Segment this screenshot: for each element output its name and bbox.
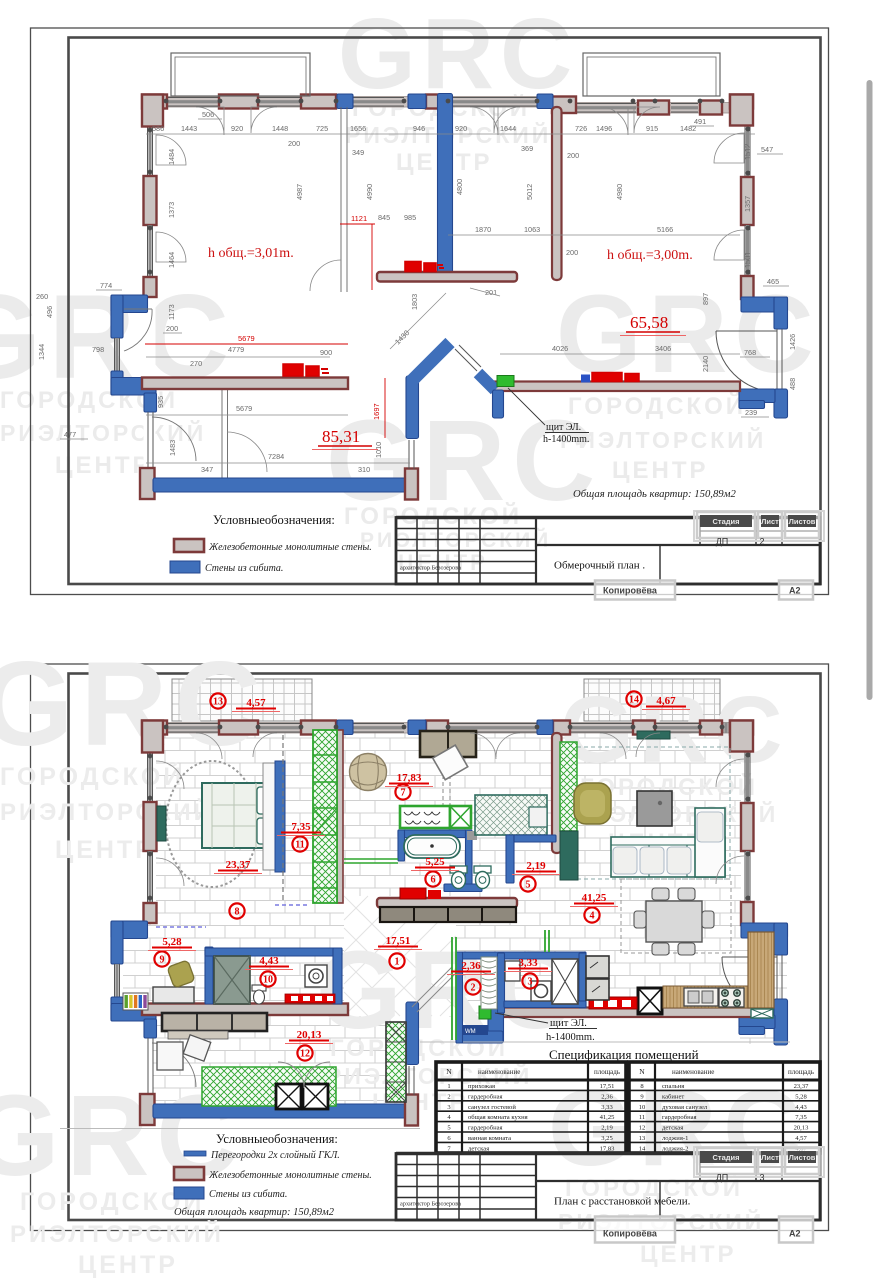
- svg-text:17,83: 17,83: [600, 1145, 616, 1152]
- svg-text:798: 798: [92, 345, 104, 354]
- svg-text:1: 1: [395, 956, 400, 967]
- svg-text:h-1400mm.: h-1400mm.: [546, 1032, 595, 1043]
- svg-text:2: 2: [471, 982, 476, 993]
- svg-text:4800: 4800: [455, 179, 464, 195]
- svg-text:915: 915: [646, 124, 658, 133]
- svg-text:17,51: 17,51: [386, 935, 411, 947]
- svg-text:985: 985: [404, 213, 416, 222]
- svg-text:6: 6: [431, 874, 436, 885]
- svg-text:Перегородки 2х слойный ГКЛ.: Перегородки 2х слойный ГКЛ.: [210, 1150, 340, 1161]
- svg-text:1803: 1803: [410, 294, 419, 310]
- svg-text:1063: 1063: [524, 225, 540, 234]
- svg-text:20,13: 20,13: [297, 1029, 322, 1041]
- svg-text:Железобетонные монолитные стен: Железобетонные монолитные стены.: [208, 1170, 372, 1181]
- svg-text:506: 506: [202, 110, 214, 119]
- svg-text:1644: 1644: [500, 124, 516, 133]
- svg-text:12: 12: [639, 1125, 646, 1132]
- svg-text:ЦЕНТР: ЦЕНТР: [640, 1241, 737, 1268]
- svg-text:1: 1: [447, 1083, 450, 1090]
- svg-text:11: 11: [639, 1114, 645, 1121]
- svg-text:41,25: 41,25: [582, 892, 607, 904]
- svg-text:ванная комната: ванная комната: [468, 1135, 511, 1142]
- svg-text:310: 310: [358, 465, 370, 474]
- svg-text:общая комната кухня: общая комната кухня: [468, 1114, 528, 1121]
- svg-text:239: 239: [745, 408, 757, 417]
- svg-text:200: 200: [567, 151, 579, 160]
- svg-text:23,37: 23,37: [226, 859, 251, 871]
- svg-text:23,37: 23,37: [794, 1083, 810, 1090]
- svg-text:2: 2: [759, 537, 764, 547]
- svg-text:1483: 1483: [168, 440, 177, 456]
- svg-text:774: 774: [100, 281, 112, 290]
- svg-text:Условныеобозначения:: Условныеобозначения:: [213, 513, 335, 527]
- svg-text:1373: 1373: [167, 202, 176, 218]
- svg-text:1357: 1357: [743, 196, 752, 212]
- svg-text:768: 768: [744, 348, 756, 357]
- svg-text:586: 586: [152, 124, 164, 133]
- svg-text:Общая площадь квартир: 150,89м: Общая площадь квартир: 150,89м2: [174, 1207, 335, 1218]
- svg-text:10: 10: [263, 974, 273, 985]
- svg-text:h общ.=3,01m.: h общ.=3,01m.: [208, 246, 294, 261]
- svg-text:Спецификация помещений: Спецификация помещений: [549, 1047, 699, 1062]
- svg-text:1501: 1501: [743, 252, 752, 268]
- svg-text:369: 369: [521, 144, 533, 153]
- svg-text:5: 5: [526, 879, 531, 890]
- svg-text:4,57: 4,57: [246, 697, 266, 709]
- svg-text:845: 845: [378, 213, 390, 222]
- svg-text:897: 897: [701, 293, 710, 305]
- svg-text:площадь: площадь: [594, 1068, 620, 1076]
- svg-text:N: N: [639, 1067, 645, 1076]
- svg-text:кабинет: кабинет: [662, 1093, 684, 1100]
- svg-text:Железобетонные монолитные стен: Железобетонные монолитные стены.: [208, 542, 372, 553]
- svg-text:3: 3: [528, 976, 533, 987]
- svg-text:270: 270: [190, 359, 202, 368]
- svg-text:Копировёва: Копировёва: [603, 1229, 658, 1239]
- svg-text:41,25: 41,25: [600, 1114, 616, 1121]
- svg-text:духовая санузел: духовая санузел: [662, 1104, 708, 1111]
- svg-text:900: 900: [320, 348, 332, 357]
- svg-text:4779: 4779: [228, 345, 244, 354]
- svg-text:17,51: 17,51: [600, 1083, 615, 1090]
- svg-text:1656: 1656: [350, 124, 366, 133]
- svg-text:200: 200: [566, 248, 578, 257]
- svg-text:1121: 1121: [351, 214, 367, 223]
- svg-text:12: 12: [300, 1048, 310, 1059]
- svg-text:гардеробная: гардеробная: [662, 1114, 697, 1121]
- svg-text:7,35: 7,35: [291, 821, 311, 833]
- svg-text:1496: 1496: [596, 124, 612, 133]
- svg-text:1448: 1448: [272, 124, 288, 133]
- svg-text:65,58: 65,58: [630, 313, 668, 332]
- svg-text:4,57: 4,57: [795, 1135, 807, 1142]
- svg-text:2,36: 2,36: [601, 1093, 613, 1100]
- svg-text:17,83: 17,83: [397, 772, 422, 784]
- svg-text:260: 260: [36, 292, 48, 301]
- svg-text:1010: 1010: [374, 442, 383, 458]
- svg-text:1512: 1512: [743, 144, 752, 160]
- svg-text:5,28: 5,28: [162, 936, 182, 948]
- svg-text:2,19: 2,19: [601, 1125, 613, 1132]
- svg-text:5166: 5166: [657, 225, 673, 234]
- svg-text:Стадия: Стадия: [712, 1153, 739, 1162]
- svg-text:Копировёва: Копировёва: [603, 586, 658, 596]
- svg-text:GRC: GRC: [0, 637, 268, 771]
- svg-text:N: N: [446, 1067, 452, 1076]
- svg-text:1173: 1173: [167, 304, 176, 320]
- svg-text:725: 725: [316, 124, 328, 133]
- svg-text:План с расстановкой мебели.: План с расстановкой мебели.: [554, 1196, 691, 1208]
- svg-text:1697: 1697: [372, 403, 381, 420]
- svg-text:5012: 5012: [525, 184, 534, 200]
- svg-text:8: 8: [235, 906, 240, 917]
- svg-text:WM: WM: [465, 1029, 476, 1035]
- svg-text:726: 726: [575, 124, 587, 133]
- svg-text:Стены из сибита.: Стены из сибита.: [205, 563, 283, 574]
- svg-text:Листов: Листов: [789, 517, 816, 526]
- svg-text:5679: 5679: [236, 404, 252, 413]
- svg-text:4,43: 4,43: [795, 1104, 807, 1111]
- svg-text:946: 946: [413, 124, 425, 133]
- svg-text:лоджия-2: лоджия-2: [662, 1145, 688, 1152]
- svg-text:гардеробная: гардеробная: [468, 1093, 503, 1100]
- svg-text:Общая площадь квартир: 150,89м: Общая площадь квартир: 150,89м2: [573, 488, 736, 500]
- svg-text:2: 2: [447, 1093, 450, 1100]
- svg-text:5679: 5679: [238, 334, 255, 343]
- svg-text:3406: 3406: [655, 344, 671, 353]
- svg-text:488: 488: [788, 378, 797, 390]
- svg-text:архитектор Безозерова: архитектор Безозерова: [400, 1201, 461, 1208]
- svg-text:А2: А2: [789, 586, 801, 596]
- svg-text:3,33: 3,33: [601, 1104, 613, 1111]
- svg-text:2140: 2140: [701, 356, 710, 372]
- svg-text:14: 14: [639, 1145, 646, 1152]
- svg-text:7,35: 7,35: [795, 1114, 807, 1121]
- svg-text:2,19: 2,19: [526, 860, 546, 872]
- svg-text:14: 14: [629, 694, 639, 705]
- svg-text:лоджия-1: лоджия-1: [662, 1135, 688, 1142]
- svg-text:200: 200: [288, 139, 300, 148]
- svg-text:3,33: 3,33: [518, 957, 538, 969]
- svg-text:наименование: наименование: [672, 1068, 714, 1076]
- svg-text:4: 4: [590, 910, 595, 921]
- svg-text:4026: 4026: [552, 344, 568, 353]
- svg-text:прихожая: прихожая: [468, 1083, 495, 1090]
- svg-text:Лист: Лист: [761, 1153, 779, 1162]
- svg-text:гардеробная: гардеробная: [468, 1125, 503, 1132]
- svg-text:щит ЭЛ.: щит ЭЛ.: [546, 422, 581, 433]
- svg-text:Обмерочный план .: Обмерочный план .: [554, 560, 645, 572]
- svg-text:Стадия: Стадия: [712, 517, 739, 526]
- svg-text:9: 9: [160, 954, 165, 965]
- svg-text:Лист: Лист: [761, 517, 779, 526]
- svg-text:h общ.=3,00m.: h общ.=3,00m.: [607, 248, 693, 263]
- svg-text:детская: детская: [662, 1125, 683, 1132]
- svg-text:ГОРОДСКОЙ: ГОРОДСКОЙ: [0, 761, 184, 791]
- svg-text:7: 7: [401, 787, 406, 798]
- svg-text:спальня: спальня: [662, 1083, 684, 1090]
- svg-text:РИЭЛТОРСКИЙ: РИЭЛТОРСКИЙ: [10, 1220, 224, 1248]
- svg-text:детская: детская: [468, 1145, 489, 1152]
- svg-text:1464: 1464: [167, 252, 176, 268]
- svg-text:1426: 1426: [788, 334, 797, 350]
- svg-text:477: 477: [64, 430, 76, 439]
- svg-text:ДП: ДП: [716, 537, 729, 547]
- svg-text:1870: 1870: [475, 225, 491, 234]
- svg-text:Условныеобозначения:: Условныеобозначения:: [216, 1132, 338, 1146]
- svg-text:13: 13: [639, 1135, 646, 1142]
- svg-text:4,43: 4,43: [259, 955, 279, 967]
- svg-text:4987: 4987: [295, 184, 304, 200]
- svg-text:200: 200: [166, 324, 178, 333]
- svg-text:архитектор Безозерова: архитектор Безозерова: [400, 565, 461, 572]
- svg-text:ЦЕНТР: ЦЕНТР: [78, 1251, 178, 1279]
- svg-text:4980: 4980: [615, 184, 624, 200]
- svg-text:ЦЕНТР: ЦЕНТР: [55, 836, 155, 864]
- svg-text:11: 11: [295, 839, 304, 850]
- svg-text:наименование: наименование: [478, 1068, 520, 1076]
- svg-text:5,25: 5,25: [425, 856, 445, 868]
- svg-text:20,13: 20,13: [794, 1125, 810, 1132]
- svg-text:920: 920: [455, 124, 467, 133]
- svg-text:санузел гостевой: санузел гостевой: [468, 1104, 516, 1111]
- svg-text:1443: 1443: [181, 124, 197, 133]
- svg-text:Листов: Листов: [789, 1153, 816, 1162]
- svg-text:5,28: 5,28: [795, 1093, 807, 1100]
- svg-text:347: 347: [201, 465, 213, 474]
- svg-text:3,25: 3,25: [601, 1135, 613, 1142]
- svg-text:РИЭЛТОРСКИЙ: РИЭЛТОРСКИЙ: [0, 798, 214, 826]
- svg-text:935: 935: [156, 396, 165, 408]
- svg-text:площадь: площадь: [788, 1068, 814, 1076]
- svg-text:2,36: 2,36: [461, 960, 481, 972]
- svg-text:ЦЕНТР: ЦЕНТР: [612, 457, 709, 484]
- svg-text:13: 13: [213, 696, 223, 707]
- svg-text:7284: 7284: [268, 452, 284, 461]
- svg-text:ДП: ДП: [716, 1173, 729, 1183]
- svg-text:547: 547: [761, 145, 773, 154]
- svg-text:1484: 1484: [167, 149, 176, 165]
- svg-text:1344: 1344: [37, 344, 46, 360]
- svg-text:щит ЭЛ.: щит ЭЛ.: [550, 1018, 587, 1029]
- svg-text:85,31: 85,31: [322, 427, 360, 446]
- svg-text:10: 10: [639, 1104, 646, 1111]
- svg-text:920: 920: [231, 124, 243, 133]
- svg-text:4,67: 4,67: [656, 695, 676, 707]
- svg-text:4990: 4990: [365, 184, 374, 200]
- svg-text:496: 496: [45, 306, 54, 318]
- svg-text:h-1400mm.: h-1400mm.: [543, 434, 589, 445]
- svg-text:491: 491: [694, 117, 706, 126]
- svg-text:465: 465: [767, 277, 779, 286]
- svg-text:Стены из сибита.: Стены из сибита.: [209, 1189, 287, 1200]
- svg-text:349: 349: [352, 148, 364, 157]
- svg-text:А2: А2: [789, 1229, 801, 1239]
- svg-text:3: 3: [759, 1173, 764, 1183]
